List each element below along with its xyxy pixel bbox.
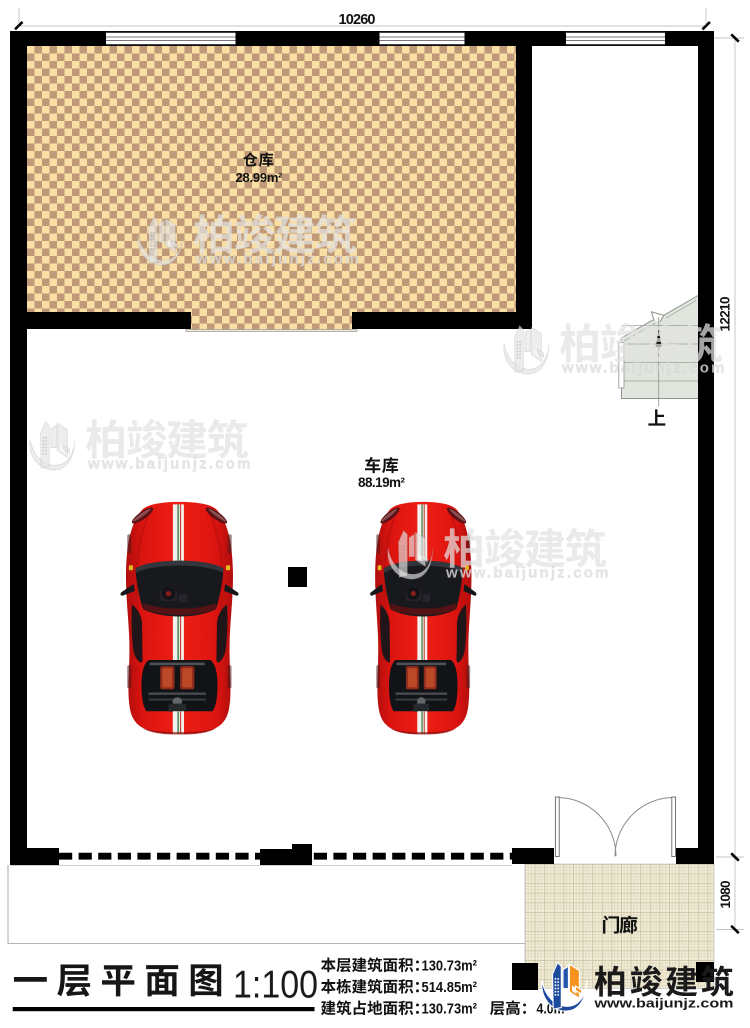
svg-text:130.73m²: 130.73m² xyxy=(422,958,478,975)
svg-text:10260: 10260 xyxy=(339,12,376,28)
svg-text:130.73m²: 130.73m² xyxy=(422,1001,478,1018)
svg-text:28.99m²: 28.99m² xyxy=(236,170,284,185)
svg-text:1:100: 1:100 xyxy=(233,964,318,1007)
svg-text:88.19m²: 88.19m² xyxy=(358,475,406,490)
svg-text:1080: 1080 xyxy=(718,881,733,909)
svg-text:514.85m²: 514.85m² xyxy=(422,979,478,996)
svg-text:www.baijunjz.com: www.baijunjz.com xyxy=(593,997,733,1011)
svg-text:12210: 12210 xyxy=(718,297,733,332)
